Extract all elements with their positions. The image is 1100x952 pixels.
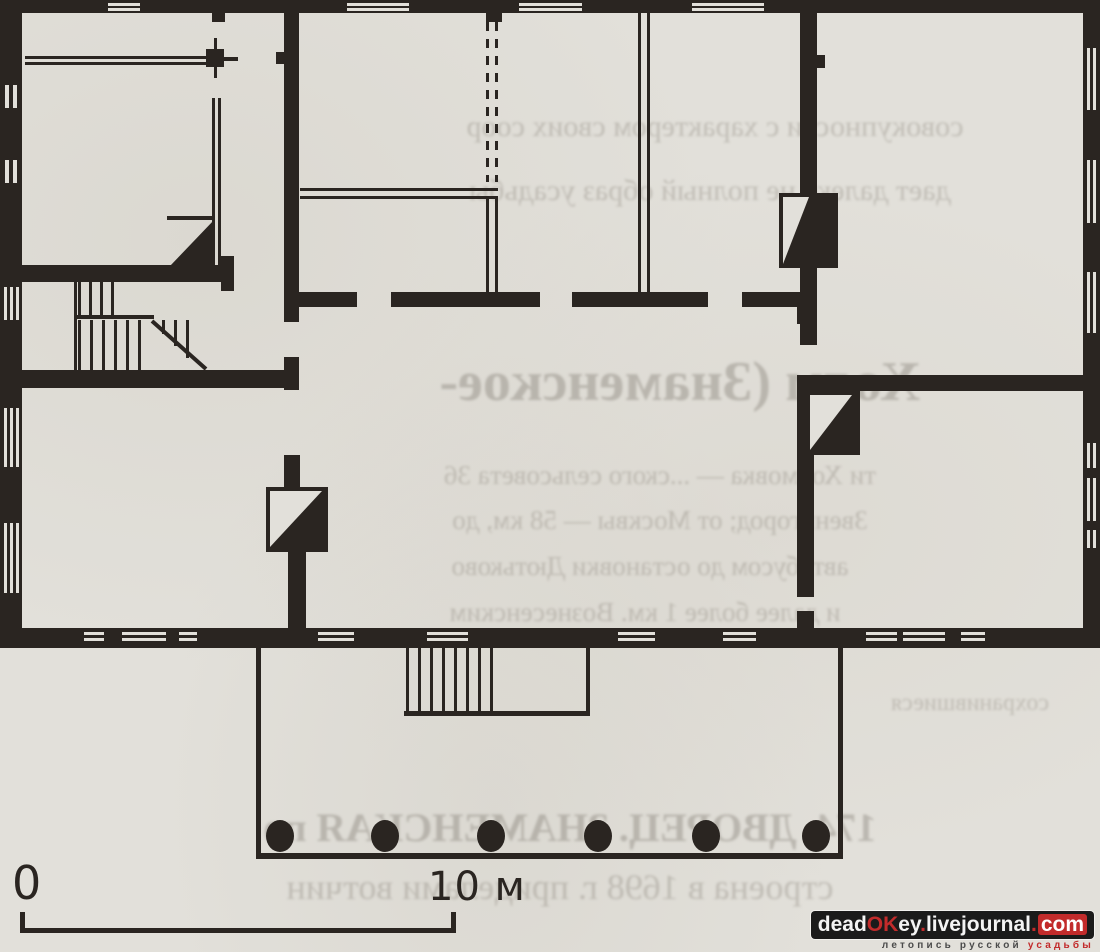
wm-tagline-main: летопись русской	[882, 940, 1028, 951]
upper-stair-flight	[167, 98, 221, 266]
wm-dot2: .	[1031, 913, 1037, 936]
interior-walls	[18, 13, 1083, 628]
wm-dead: dead	[818, 913, 867, 936]
stove-upper-central	[779, 193, 838, 268]
scale-bar-bracket	[20, 912, 456, 933]
wm-tagline-accent: усадьбы	[1028, 940, 1094, 951]
stove-left-hall	[266, 487, 328, 552]
watermark: deadOKey.livejournal.com летопись русско…	[811, 911, 1094, 951]
wm-livejournal: livejournal	[926, 913, 1031, 936]
staircase	[74, 282, 206, 370]
gallery-rail	[25, 38, 238, 78]
entrance-steps	[404, 645, 590, 716]
watermark-tagline: летопись русской усадьбы	[811, 940, 1094, 951]
scale-start-label: 0	[12, 856, 41, 910]
stove-right-room	[806, 391, 860, 455]
floor-plan-drawing	[0, 0, 1100, 952]
scale-end-label: 10 м	[428, 864, 526, 910]
porch-columns	[266, 820, 830, 852]
wm-com-chip: com	[1038, 914, 1087, 935]
window-openings	[4, 3, 1096, 641]
thin-partitions	[300, 13, 650, 292]
wm-ok: OK	[867, 913, 899, 936]
wm-ey: ey	[898, 913, 920, 936]
porch	[256, 645, 843, 859]
watermark-site-url: deadOKey.livejournal.com	[811, 911, 1094, 939]
scanned-page: совокупности с характером своих соор дае…	[0, 0, 1100, 952]
dashed-partition	[488, 22, 497, 182]
